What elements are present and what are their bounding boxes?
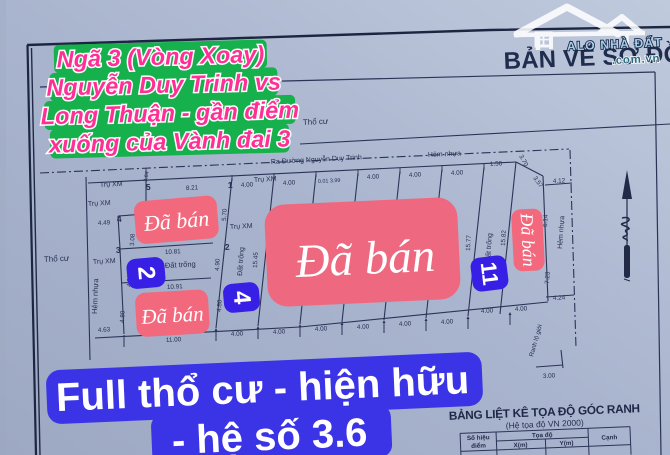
svg-text:Ngã 3 (Vòng Xoay): Ngã 3 (Vòng Xoay) — [56, 41, 264, 72]
svg-text:4.24: 4.24 — [553, 294, 566, 302]
svg-text:15.82: 15.82 — [500, 230, 508, 247]
svg-text:.com.vn: .com.vn — [612, 53, 661, 67]
svg-text:X(m): X(m) — [513, 442, 527, 450]
svg-text:8.21: 8.21 — [186, 184, 199, 192]
svg-text:3.08: 3.08 — [129, 233, 137, 246]
svg-text:11.00: 11.00 — [166, 336, 182, 344]
svg-text:4.49: 4.49 — [98, 219, 111, 227]
svg-text:3: 3 — [116, 245, 122, 255]
svg-text:- hệ số 3.6: - hệ số 3.6 — [171, 411, 368, 455]
svg-text:5.70: 5.70 — [221, 208, 229, 221]
svg-text:0.01 3.99: 0.01 3.99 — [318, 178, 341, 185]
svg-text:5: 5 — [146, 182, 152, 192]
svg-text:4.80: 4.80 — [119, 310, 127, 323]
svg-text:4.00: 4.00 — [315, 325, 328, 333]
svg-text:1: 1 — [228, 180, 234, 190]
svg-text:Số hiệu: Số hiệu — [467, 433, 490, 442]
svg-text:4.90: 4.90 — [214, 258, 222, 271]
svg-text:3.00: 3.00 — [543, 372, 556, 380]
svg-text:4.00: 4.00 — [409, 171, 422, 179]
svg-text:15.77: 15.77 — [465, 235, 473, 252]
svg-text:điểm: điểm — [471, 441, 486, 450]
svg-text:7.23: 7.23 — [544, 271, 552, 284]
svg-text:4.00: 4.00 — [241, 181, 254, 189]
svg-text:4.00: 4.00 — [357, 323, 370, 331]
svg-text:Trụ XM: Trụ XM — [100, 181, 123, 189]
svg-text:1.56: 1.56 — [490, 160, 503, 168]
svg-text:2: 2 — [225, 242, 231, 252]
svg-text:4.00: 4.00 — [451, 169, 464, 177]
svg-text:Hẻm nhựa: Hẻm nhựa — [90, 277, 100, 314]
svg-text:Trụ XM: Trụ XM — [254, 176, 277, 184]
svg-text:10.91: 10.91 — [167, 283, 184, 291]
svg-text:4.00: 4.00 — [283, 179, 296, 187]
svg-text:Trụ XM: Trụ XM — [230, 223, 253, 231]
svg-text:Đã bán: Đã bán — [293, 230, 436, 288]
svg-text:Trụ XM: Trụ XM — [93, 258, 116, 266]
svg-text:4.00: 4.00 — [441, 318, 454, 326]
svg-text:15.45: 15.45 — [252, 252, 260, 269]
svg-text:4.63: 4.63 — [98, 326, 111, 334]
svg-text:4.00: 4.00 — [231, 330, 244, 338]
svg-text:4: 4 — [117, 214, 123, 224]
svg-text:4.80: 4.80 — [216, 299, 224, 312]
svg-text:Y(m): Y(m) — [559, 440, 573, 448]
svg-text:Đã bán: Đã bán — [140, 301, 205, 329]
svg-text:4.00: 4.00 — [481, 307, 494, 315]
svg-text:Cạnh: Cạnh — [601, 434, 617, 442]
svg-text:Đã bán: Đã bán — [517, 212, 540, 267]
svg-text:4.12: 4.12 — [553, 177, 566, 185]
svg-text:4.00: 4.00 — [273, 328, 286, 336]
svg-text:Tọa độ: Tọa độ — [532, 432, 553, 440]
svg-text:Thổ cư: Thổ cư — [303, 117, 329, 127]
svg-text:2: 2 — [132, 265, 160, 281]
svg-text:11: 11 — [476, 260, 504, 286]
svg-text:4.00: 4.00 — [399, 320, 412, 328]
svg-text:4.00: 4.00 — [367, 173, 380, 181]
svg-text:Đất trống: Đất trống — [165, 259, 196, 270]
svg-text:4.00: 4.00 — [515, 305, 528, 313]
svg-text:6.14: 6.14 — [542, 214, 550, 227]
svg-text:10.81: 10.81 — [165, 248, 182, 256]
svg-text:Trụ XM: Trụ XM — [88, 200, 111, 208]
svg-text:Thổ cư: Thổ cư — [44, 254, 70, 264]
